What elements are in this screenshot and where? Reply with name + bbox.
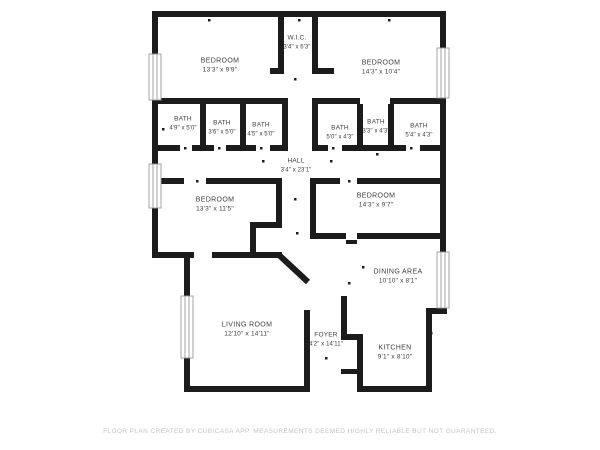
floor-plan-page: W.I.C. 3'4" x 6'3" BEDROOM 13'3" x 9'9" … xyxy=(0,0,600,450)
window-icon xyxy=(149,164,161,208)
room-dims: 12'10" x 14'11" xyxy=(222,331,273,340)
room-label-bedroom-top-left: BEDROOM 13'3" x 9'9" xyxy=(201,56,240,75)
room-name: BATH xyxy=(362,119,389,128)
room-name: BEDROOM xyxy=(201,56,240,65)
room-label-hall: HALL 3'4" x 23'1" xyxy=(281,158,312,175)
room-dims: 3'6" x 5'0" xyxy=(208,128,235,136)
windows xyxy=(149,48,449,358)
room-label-dining-area: DINING AREA 10'10" x 8'1" xyxy=(374,267,423,286)
room-label-bath-3: BATH 4'5" x 5'0" xyxy=(247,122,274,139)
room-dims: 3'3" x 4'3" xyxy=(362,127,389,135)
room-label-foyer: FOYER 4'2" x 14'11" xyxy=(309,332,343,349)
room-dims: 5'4" x 4'3" xyxy=(405,131,432,139)
room-dims: 3'4" x 23'1" xyxy=(281,166,312,174)
room-dims: 4'5" x 5'0" xyxy=(247,130,274,138)
room-name: DINING AREA xyxy=(374,267,423,276)
room-dims: 14'3" x 10'4" xyxy=(362,69,401,78)
room-name: BATH xyxy=(247,122,274,131)
room-name: BATH xyxy=(169,116,196,125)
room-name: FOYER xyxy=(309,332,343,341)
room-dims: 3'4" x 6'3" xyxy=(283,43,310,51)
room-dims: 10'10" x 8'1" xyxy=(374,278,423,287)
room-label-bath-4: BATH 5'0" x 4'3" xyxy=(326,125,353,142)
room-dims: 4'2" x 14'11" xyxy=(309,340,343,348)
room-name: BEDROOM xyxy=(362,58,401,67)
room-label-bedroom-mid-right: BEDROOM 14'3" x 9'7" xyxy=(357,191,396,210)
room-name: BEDROOM xyxy=(196,195,235,204)
room-label-bedroom-mid-left: BEDROOM 13'3" x 11'5" xyxy=(196,195,235,214)
room-name: BATH xyxy=(326,125,353,134)
room-label-bath-2: BATH 3'6" x 5'0" xyxy=(208,120,235,137)
room-name: LIVING ROOM xyxy=(222,320,273,329)
diagonal-wall xyxy=(279,255,308,282)
room-name: W.I.C. xyxy=(283,35,310,44)
window-icon xyxy=(149,54,161,100)
room-name: BATH xyxy=(405,123,432,132)
room-dims: 13'3" x 9'9" xyxy=(201,67,240,76)
window-icon xyxy=(437,252,449,308)
room-label-bath-5: BATH 3'3" x 4'3" xyxy=(362,119,389,136)
room-label-living-room: LIVING ROOM 12'10" x 14'11" xyxy=(222,320,273,339)
room-name: KITCHEN xyxy=(378,343,412,352)
room-dims: 5'0" x 4'3" xyxy=(326,133,353,141)
floor-plan-drawing xyxy=(0,0,600,450)
room-dims: 9'1" x 8'10" xyxy=(378,354,412,363)
room-dims: 14'3" x 9'7" xyxy=(357,202,396,211)
room-name: BEDROOM xyxy=(357,191,396,200)
room-label-wic: W.I.C. 3'4" x 6'3" xyxy=(283,35,310,52)
room-name: BATH xyxy=(208,120,235,129)
room-label-bath-6: BATH 5'4" x 4'3" xyxy=(405,123,432,140)
window-icon xyxy=(437,48,449,98)
room-label-bath-1: BATH 4'9" x 5'0" xyxy=(169,116,196,133)
room-name: HALL xyxy=(281,158,312,167)
window-icon xyxy=(181,296,193,358)
room-dims: 13'3" x 11'5" xyxy=(196,206,235,215)
disclaimer-text: FLOOR PLAN CREATED BY CUBICASA APP. MEAS… xyxy=(0,428,600,435)
room-label-kitchen: KITCHEN 9'1" x 8'10" xyxy=(378,343,412,362)
room-dims: 4'9" x 5'0" xyxy=(169,124,196,132)
room-label-bedroom-top-right: BEDROOM 14'3" x 10'4" xyxy=(362,58,401,77)
